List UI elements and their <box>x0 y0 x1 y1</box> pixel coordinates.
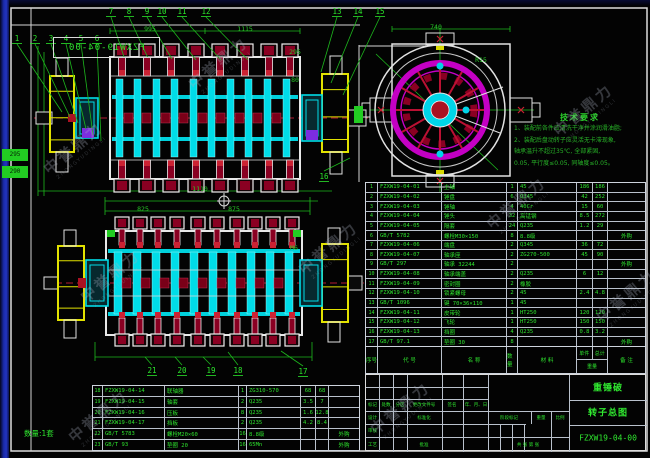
bom-cell: 8.5 <box>577 212 593 221</box>
bom-cell: 轴套 <box>165 397 239 407</box>
bom-cell: HT250 <box>518 308 577 317</box>
bom-cell: 外购 <box>329 429 359 439</box>
hammer-pin <box>217 70 223 76</box>
hammer-head-core <box>118 219 126 227</box>
rotor-disc <box>133 252 141 314</box>
bom-cell: 螺栓M30×150 <box>442 231 507 240</box>
bom-cell: 2 <box>507 289 518 298</box>
bom-cell: FZXW19-04-06 <box>378 241 442 250</box>
hammer-head-core <box>213 336 221 344</box>
balloon-number: 14 <box>353 7 363 16</box>
bom-cell: 外购 <box>608 337 645 346</box>
rotor-disc <box>153 79 160 157</box>
rotor-disc <box>208 79 215 157</box>
hammer-head-core <box>154 219 162 227</box>
bom-cell: 6 <box>507 193 518 202</box>
bom-cell: 9 <box>366 260 378 269</box>
bom-cell: 12 <box>593 270 608 279</box>
bom-cell: 8.4 <box>316 418 329 428</box>
shaft-step <box>44 277 58 289</box>
dim-label-v2a: 825 <box>137 205 149 213</box>
bom-cell <box>593 260 608 269</box>
bom-cell: 4 <box>507 202 518 211</box>
bom-cell: FZXW19-04-17 <box>103 418 165 428</box>
cad-drawing-canvas: 123456789101112131415162120191817 FZXW19… <box>0 0 650 458</box>
notes-line: 1、装配前各件应清洗干净并涂润滑油脂; <box>514 123 646 135</box>
hammer-head-core <box>117 181 127 190</box>
bom-cell <box>593 231 608 240</box>
bom-cell: FZXW19-04-09 <box>378 279 442 288</box>
bom-cell: FZXW19-04-15 <box>103 397 165 407</box>
bom-cell <box>608 241 645 250</box>
bom-header-unit: 单件 <box>577 347 593 359</box>
bom-cell: Q235 <box>518 270 577 279</box>
hammer-head-core <box>215 181 225 190</box>
rotor-disc <box>264 79 271 157</box>
bom-cell: 32 <box>507 212 518 221</box>
balloon-number: 18 <box>233 366 243 375</box>
hammer-stem <box>119 318 125 334</box>
shaft-block <box>216 113 225 123</box>
bom-cell: Q235 <box>247 418 301 428</box>
bom-cell: 挡板 <box>165 418 239 428</box>
bom-cell: 8.8级 <box>518 231 577 240</box>
balloon-number: 10 <box>157 7 167 16</box>
rotor-disc <box>227 79 234 157</box>
hammer-head-core <box>118 336 126 344</box>
bom-cell: 29 <box>593 222 608 231</box>
quantity-note: 数量:1套 <box>24 428 54 439</box>
bom-cell: HT250 <box>518 318 577 327</box>
bom-cell: 45 <box>518 289 577 298</box>
bom-cell: Q235 <box>247 408 301 418</box>
bom-cell: 120 <box>577 308 593 317</box>
bom-table-upper: 1FZXW19-04-01主轴1451861862FZXW19-04-02锤盘6… <box>365 182 646 374</box>
bom-cell <box>329 408 359 418</box>
bom-cell: 压板 <box>165 408 239 418</box>
bom-cell: 2 <box>239 397 247 407</box>
bom-row: 14FZXW19-04-11皮带轮1HT250120120 <box>366 308 645 318</box>
bom-cell: 1 <box>507 308 518 317</box>
hammer-stem <box>270 318 276 334</box>
red-fitting <box>78 278 86 288</box>
purple-fitting <box>306 130 318 140</box>
hammer-pin <box>155 242 161 248</box>
balloon-leader <box>281 351 303 366</box>
bom-cell: 1.2 <box>577 222 593 231</box>
coupling <box>86 260 108 306</box>
bom-cell <box>316 429 329 439</box>
bom-row: 5FZXW19-04-05隔套24Q2351.229 <box>366 222 645 232</box>
balloon-number: 12 <box>201 7 210 16</box>
notes-line: 2、装配后盘动转子应灵活无卡滞现象, <box>514 135 646 147</box>
bom-cell: 锤头 <box>442 212 507 221</box>
bom-cell: 22 <box>93 429 103 439</box>
hammer-pin <box>137 242 143 248</box>
rotor-disc <box>116 79 123 157</box>
bom-row: 22GB/T 5783螺栓M20×60168.8级外购 <box>93 429 359 440</box>
bom-cell: 4 <box>507 328 518 337</box>
bom-row: 23GB/T 93垫圈 201665Mn外购 <box>93 440 359 450</box>
bom-row: 17GB/T 97.1垫圈 308外购 <box>366 337 645 346</box>
tb-label-zone: 分区 <box>396 402 405 408</box>
bom-cell: FZXW19-04-08 <box>378 270 442 279</box>
bom-cell: FZXW19-04-11 <box>378 308 442 317</box>
hammer-pin <box>242 70 248 76</box>
tb-label-standard: 标准化 <box>417 415 431 421</box>
bom-cell <box>577 299 593 308</box>
shaft-block <box>142 113 151 123</box>
hammer-head-core <box>288 219 296 227</box>
hammer-head-core <box>213 219 221 227</box>
hammer-head-core <box>233 336 241 344</box>
bom-cell <box>518 260 577 269</box>
bom-cell: 252 <box>593 193 608 202</box>
bom-cell <box>577 279 593 288</box>
bearing-pedestal <box>64 230 76 246</box>
bom-cell: FZXW19-04-14 <box>103 386 165 396</box>
balloon-number: 2 <box>33 34 38 43</box>
bom-cell: 24 <box>507 222 518 231</box>
rotor-disc <box>266 252 274 314</box>
hammer-pin <box>266 70 272 76</box>
dim-label-s80: 80 <box>291 76 299 84</box>
bom-cell: GB/T 5783 <box>103 429 165 439</box>
hammer-head-core <box>269 336 277 344</box>
tb-drawing-number: FZXW19-04-00 <box>579 434 637 443</box>
bom-cell: 18 <box>93 386 103 396</box>
notes-line: 0.05, 平行度≤0.05, 同轴度≤0.05。 <box>514 158 646 170</box>
dim-tag: 295 <box>2 149 28 161</box>
bom-cell: ZG270-500 <box>518 250 577 259</box>
bom-cell <box>301 440 316 450</box>
rotor-disc <box>209 252 217 314</box>
bom-cell: GB/T 5782 <box>378 231 442 240</box>
hammer-head-core <box>233 219 241 227</box>
bom-cell: 21 <box>93 418 103 428</box>
hammer-head-core <box>136 219 144 227</box>
hammer-pin <box>252 312 258 318</box>
bom-cell: FZXW19-04-01 <box>378 183 442 192</box>
bom-cell: ZG310-570 <box>247 386 301 396</box>
bom-cell: 45 <box>518 183 577 192</box>
bom-cell: 挡圈 <box>442 328 507 337</box>
bom-cell: FZXW19-04-13 <box>378 328 442 337</box>
bom-cell <box>608 222 645 231</box>
hammer-stem <box>155 318 161 334</box>
bom-cell: 密封圈 <box>442 279 507 288</box>
bom-cell <box>329 386 359 396</box>
hammer-stem <box>214 318 220 334</box>
dim-label-v1a: 995 <box>144 25 156 33</box>
notes-title: 技术要求 <box>514 112 646 123</box>
bom-cell <box>608 270 645 279</box>
coupling <box>300 260 322 306</box>
bom-row: 19FZXW19-04-15轴套2Q2353.57 <box>93 397 359 408</box>
shaft-block <box>253 113 262 123</box>
bom-cell: 15 <box>366 318 378 327</box>
drawing-number-box: FZXW19-04-00 <box>53 37 160 58</box>
bom-row: 12FZXW19-04-10锁紧螺母2452.44.8 <box>366 289 645 299</box>
bom-cell <box>608 299 645 308</box>
balloon-number: 16 <box>319 172 329 181</box>
bom-cell: 72 <box>593 241 608 250</box>
balloon-number: 1 <box>15 34 20 43</box>
bom-row: 10FZXW19-04-08轴承端盖2Q235612 <box>366 270 645 280</box>
bom-cell: Q235 <box>518 328 577 337</box>
balloon-leader <box>343 17 380 95</box>
tb-label-approve: 批准 <box>420 442 429 448</box>
bom-row: 3FZXW19-04-03锤轴440Cr1560 <box>366 202 645 212</box>
bom-cell <box>608 202 645 211</box>
hammer-head-core <box>166 181 176 190</box>
bom-cell: Q235 <box>247 397 301 407</box>
bom-header-qty: 数量 <box>507 347 518 373</box>
bom-cell: 隔套 <box>442 222 507 231</box>
bom-lower-rows: 18FZXW19-04-14联轴器1ZG310-570686819FZXW19-… <box>93 386 359 450</box>
shaft-block <box>235 113 244 123</box>
bom-cell: 19 <box>93 397 103 407</box>
hammer-pin <box>270 312 276 318</box>
tb-label-sign: 签名 <box>448 402 457 408</box>
tb-sheet-title: 转子总图 <box>588 406 628 419</box>
rotor-disc <box>171 252 179 314</box>
hammer-pin <box>119 70 125 76</box>
shaft-block <box>255 278 264 288</box>
bom-row: 7FZXW19-04-06端盘2Q3453672 <box>366 241 645 251</box>
rotor-disc <box>283 79 290 157</box>
bom-cell <box>608 328 645 337</box>
bearing-pedestal <box>56 152 68 172</box>
hammer-pin <box>287 160 293 166</box>
hammer-pin <box>168 160 174 166</box>
bom-cell: FZXW19-04-03 <box>378 202 442 211</box>
hammer-head-core <box>173 219 181 227</box>
bom-cell: FZXW19-04-05 <box>378 222 442 231</box>
bom-header-mat: 材 料 <box>518 347 577 373</box>
hammer-pin <box>144 160 150 166</box>
bom-cell: 8 <box>507 337 518 346</box>
bom-cell: 120 <box>593 308 608 317</box>
hammer-head-core <box>269 219 277 227</box>
bom-cell: 150 <box>593 318 608 327</box>
tb-label-count: 处数 <box>382 402 391 408</box>
tb-label-stage: 阶段标记 <box>500 415 518 421</box>
bom-cell: GB/T 1096 <box>378 299 442 308</box>
bom-row: 21FZXW19-04-17挡板2Q2354.28.4 <box>93 418 359 429</box>
hammer-pin <box>119 312 125 318</box>
bom-cell: 2 <box>507 250 518 259</box>
hammer-pin <box>195 242 201 248</box>
bom-cell: 20 <box>93 408 103 418</box>
bom-header-name: 名 称 <box>442 347 507 373</box>
bom-cell <box>518 337 577 346</box>
bom-cell: FZXW19-04-12 <box>378 318 442 327</box>
balloon-leader <box>203 357 211 365</box>
bearing-housing <box>322 74 348 152</box>
hammer-pin <box>214 312 220 318</box>
bom-row: 1FZXW19-04-01主轴145186186 <box>366 183 645 193</box>
bom-cell: 1 <box>507 183 518 192</box>
hammer-stem <box>289 318 295 334</box>
rotor-disc <box>171 79 178 157</box>
bom-header-weight: 重量 <box>577 360 607 373</box>
hammer-stem <box>252 318 258 334</box>
hammer-pin <box>119 160 125 166</box>
bom-cell: FZXW19-04-07 <box>378 250 442 259</box>
bom-cell: GB/T 97.1 <box>378 337 442 346</box>
hammer-pin <box>193 70 199 76</box>
shaft-block <box>161 113 170 123</box>
bom-cell: Q345 <box>518 193 577 202</box>
bom-cell <box>608 183 645 192</box>
hammer-pin <box>266 160 272 166</box>
hammer-head-core <box>251 336 259 344</box>
bom-cell: 12 <box>366 289 378 298</box>
balloon-number: 19 <box>206 366 215 375</box>
bom-cell: 15 <box>577 202 593 211</box>
bom-cell: Q345 <box>518 241 577 250</box>
bom-cell <box>577 337 593 346</box>
bom-cell: 2 <box>507 260 518 269</box>
bom-cell: 6 <box>577 270 593 279</box>
title-block: 标记 处数 分区 更改文件号 签名 年、月、日 设计 标准化 审核 工艺 批准 … <box>365 374 646 451</box>
bom-cell: 40Cr <box>518 202 577 211</box>
rotor-disc <box>285 252 293 314</box>
hammer-pin <box>195 312 201 318</box>
bom-cell: 8 <box>366 250 378 259</box>
bom-cell: 螺栓M20×60 <box>165 429 239 439</box>
bom-cell: 8 <box>507 231 518 240</box>
bom-row: 11FZXW19-04-09密封圈2橡胶 <box>366 279 645 289</box>
bom-cell: 23 <box>93 440 103 450</box>
bom-cell <box>316 440 329 450</box>
bom-row: 9GB/T 297轴承 322442外购 <box>366 260 645 270</box>
bom-row: 16FZXW19-04-13挡圈4Q2350.83.2 <box>366 328 645 338</box>
bom-header-no: 序号 <box>366 347 378 373</box>
rotor-disc <box>134 79 141 157</box>
rotor-disc <box>190 252 198 314</box>
bom-cell: GB/T 93 <box>103 440 165 450</box>
bom-cell: 7 <box>366 241 378 250</box>
dim-label-v1c: 1110 <box>192 185 208 193</box>
hammer-pin <box>242 160 248 166</box>
bom-cell <box>593 299 608 308</box>
balloon-number: 21 <box>147 366 156 375</box>
bom-cell: 90 <box>593 250 608 259</box>
shaft-block <box>141 278 150 288</box>
hammer-pin <box>193 160 199 166</box>
balloon-leader <box>175 357 182 365</box>
hammer-pin <box>252 242 258 248</box>
balloon-number: 20 <box>177 366 187 375</box>
bom-cell: 轴承座 <box>442 250 507 259</box>
bom-header-remark: 备 注 <box>608 347 645 373</box>
bom-row: 4FZXW19-04-04锤头32高锰钢8.5272 <box>366 212 645 222</box>
shaft-block <box>179 113 188 123</box>
bom-cell: 150 <box>577 318 593 327</box>
tb-label-mark: 标记 <box>368 402 377 408</box>
shaft-block <box>198 113 207 123</box>
bearing-pedestal <box>64 320 76 338</box>
bom-row: 20FZXW19-04-16压板8Q2351.612.8 <box>93 408 359 419</box>
bom-cell: 12.8 <box>316 408 329 418</box>
spoke <box>447 121 463 148</box>
bom-cell: 高锰钢 <box>518 212 577 221</box>
bom-cell: 11 <box>366 279 378 288</box>
dim-tag: 290 <box>2 166 28 178</box>
bom-cell: 8.8级 <box>247 429 301 439</box>
bom-cell: 5 <box>366 222 378 231</box>
bom-cell: 1 <box>507 299 518 308</box>
bom-cell: 3.2 <box>593 328 608 337</box>
bom-upper-rows: 1FZXW19-04-01主轴1451861862FZXW19-04-02锤盘6… <box>366 183 645 346</box>
bom-cell <box>608 193 645 202</box>
hammer-head-core <box>215 46 225 55</box>
shaft-block <box>124 113 133 123</box>
hammer-pin <box>155 312 161 318</box>
dim-label-s295: 295 <box>289 48 301 56</box>
hammer-stem <box>174 318 180 334</box>
bom-cell <box>301 429 316 439</box>
bom-cell: 外购 <box>608 260 645 269</box>
rotor-side-view-upper <box>36 44 366 192</box>
rotor-disc <box>245 79 252 157</box>
bom-cell: 1 <box>239 386 247 396</box>
rotor-disc <box>228 252 236 314</box>
bom-cell <box>593 337 608 346</box>
hammer-pin <box>174 242 180 248</box>
rotor-disc <box>114 252 122 314</box>
notes-line: 轴承温升不超过35℃, 全部紧固, <box>514 146 646 158</box>
bom-cell: 68 <box>301 386 316 396</box>
hammer-stem <box>195 318 201 334</box>
bom-cell: 飞轮 <box>442 318 507 327</box>
bom-cell: 主轴 <box>442 183 507 192</box>
bom-cell: 42 <box>577 193 593 202</box>
bom-cell: FZXW19-04-10 <box>378 289 442 298</box>
bom-cell: 1.6 <box>301 408 316 418</box>
tb-label-process: 工艺 <box>368 442 377 448</box>
bom-cell: FZXW19-04-16 <box>103 408 165 418</box>
bom-cell: 外购 <box>329 440 359 450</box>
hammer-head-core <box>142 181 152 190</box>
bom-cell <box>608 250 645 259</box>
bom-cell: 3.5 <box>301 397 316 407</box>
shaft-block <box>236 278 245 288</box>
bom-cell: 2 <box>366 193 378 202</box>
bom-cell: 锤盘 <box>442 193 507 202</box>
bom-cell <box>608 212 645 221</box>
hammer-pin <box>174 312 180 318</box>
tb-label-change-doc: 更改文件号 <box>413 402 436 408</box>
balloon-number: 13 <box>332 7 341 16</box>
hammer-pin <box>234 312 240 318</box>
bom-cell: 36 <box>577 241 593 250</box>
shaft-step <box>348 276 362 290</box>
hammer-head-core <box>194 336 202 344</box>
bom-cell: 0.8 <box>577 328 593 337</box>
dim-label-m6: M6 <box>290 244 298 252</box>
drawing-number-mirrored: FZXW19-04-00 <box>68 43 145 53</box>
bom-cell: 8 <box>239 408 247 418</box>
tb-product-name: 重锤破 <box>593 381 623 394</box>
tb-label-sheets: 共 张 第 张 <box>517 442 539 448</box>
hammer-head-core <box>136 336 144 344</box>
dim-label-ev: 740 <box>430 23 442 31</box>
tb-label-design: 设计 <box>368 415 377 421</box>
bearing-pedestal <box>56 58 68 76</box>
